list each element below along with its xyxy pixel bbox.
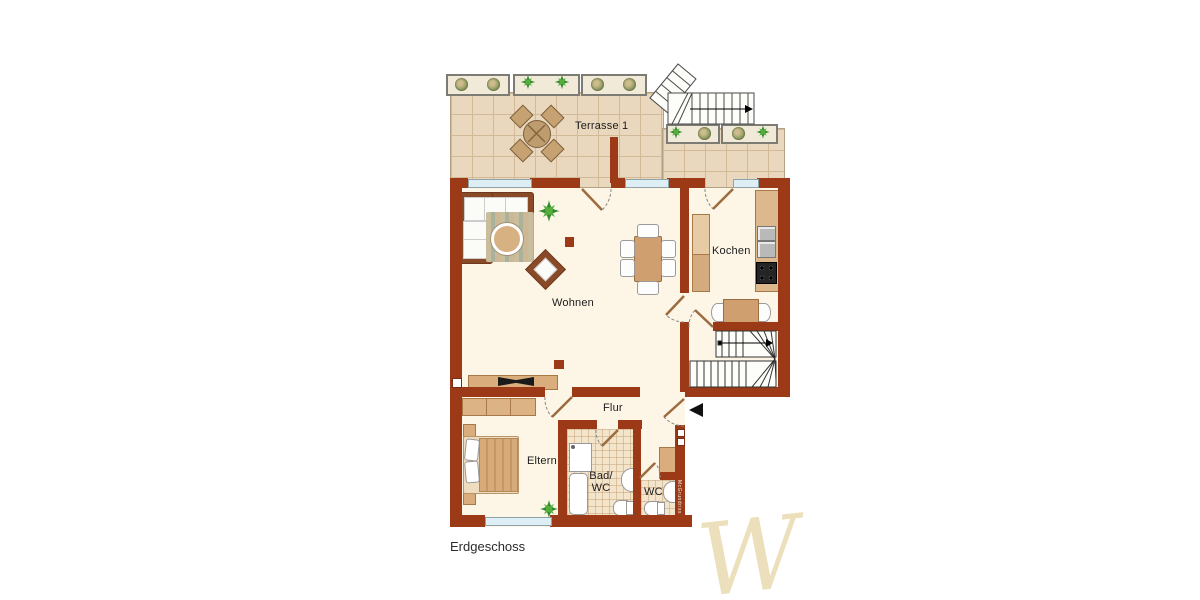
label-bath-line2: WC <box>586 482 616 494</box>
sofa-cushions <box>463 221 487 259</box>
planter-box <box>581 74 647 96</box>
kitchen-counter <box>692 214 710 256</box>
planter-box <box>666 124 720 144</box>
planter-box <box>513 74 580 96</box>
label-kitchen: Kochen <box>712 245 751 257</box>
dining-chair <box>661 240 676 258</box>
wall-top <box>530 178 580 188</box>
round-plant <box>487 78 500 91</box>
meter-box <box>677 438 685 446</box>
window <box>733 179 759 188</box>
chimney <box>452 378 462 388</box>
wall-bottom <box>450 515 485 527</box>
wall-top <box>611 178 625 188</box>
coffee-table <box>491 223 523 255</box>
label-hall: Flur <box>603 402 623 414</box>
pillow <box>464 460 480 483</box>
dining-chair <box>620 259 635 277</box>
label-bath: Bad/ WC <box>586 470 616 494</box>
window <box>625 179 669 188</box>
wall-top <box>667 178 705 188</box>
floorplan-canvas: Terrasse 1 Wohnen Kochen Flur Eltern Bad… <box>0 0 1200 600</box>
plan-title: Erdgeschoss <box>450 539 525 554</box>
wall-bottom <box>550 515 692 527</box>
round-plant <box>455 78 468 91</box>
label-parents: Eltern <box>527 455 557 467</box>
wall-living-south <box>450 387 545 397</box>
wall-hall-bath <box>558 420 597 429</box>
wall-living-south <box>572 387 640 397</box>
label-living: Wohnen <box>552 297 594 309</box>
window <box>485 517 552 526</box>
round-plant <box>591 78 604 91</box>
wall-stairs-west <box>680 322 689 392</box>
shower-head <box>571 445 575 449</box>
pillow <box>464 438 480 461</box>
exterior-stairs <box>650 64 754 124</box>
column <box>565 237 574 247</box>
wall-bath-wc <box>633 429 641 515</box>
terrace-divider-wall <box>610 137 618 183</box>
wall-left <box>450 178 462 527</box>
kitchen-sink <box>757 241 776 258</box>
wall-bed-bath <box>558 420 567 527</box>
stove <box>756 262 777 284</box>
terrace-floor-left <box>450 92 664 188</box>
meter-box <box>677 429 685 437</box>
round-plant <box>623 78 636 91</box>
signature-watermark: W <box>692 493 806 600</box>
bed-blanket <box>479 438 518 492</box>
label-terrace: Terrasse 1 <box>575 120 628 132</box>
dining-chair <box>620 240 635 258</box>
wall-kitchen-divider <box>680 188 689 293</box>
wall-kitchen-stairs <box>713 322 790 331</box>
dining-table <box>634 236 662 282</box>
wall-wc-north <box>660 472 675 480</box>
terrace-table <box>523 120 551 148</box>
wall-watermark: McGrundriss <box>676 480 682 514</box>
wall-right <box>778 178 790 397</box>
wall-hall-bath <box>618 420 642 429</box>
planter-box <box>721 124 778 144</box>
kitchen-chair <box>758 303 771 322</box>
kitchen-counter <box>692 254 710 292</box>
column <box>554 360 564 369</box>
round-plant <box>732 127 745 140</box>
planter-box <box>446 74 510 96</box>
dining-chair <box>637 224 659 238</box>
label-wc: WC <box>644 486 663 498</box>
dining-chair <box>637 281 659 295</box>
round-plant <box>698 127 711 140</box>
kitchen-sink <box>757 226 776 241</box>
wall-stairs-south <box>685 387 790 397</box>
toilet-tank <box>657 502 665 515</box>
dining-chair <box>661 259 676 277</box>
wardrobe <box>462 398 536 416</box>
entrance-arrow <box>689 403 703 417</box>
label-bath-line1: Bad/ <box>586 470 616 482</box>
window <box>468 179 532 188</box>
